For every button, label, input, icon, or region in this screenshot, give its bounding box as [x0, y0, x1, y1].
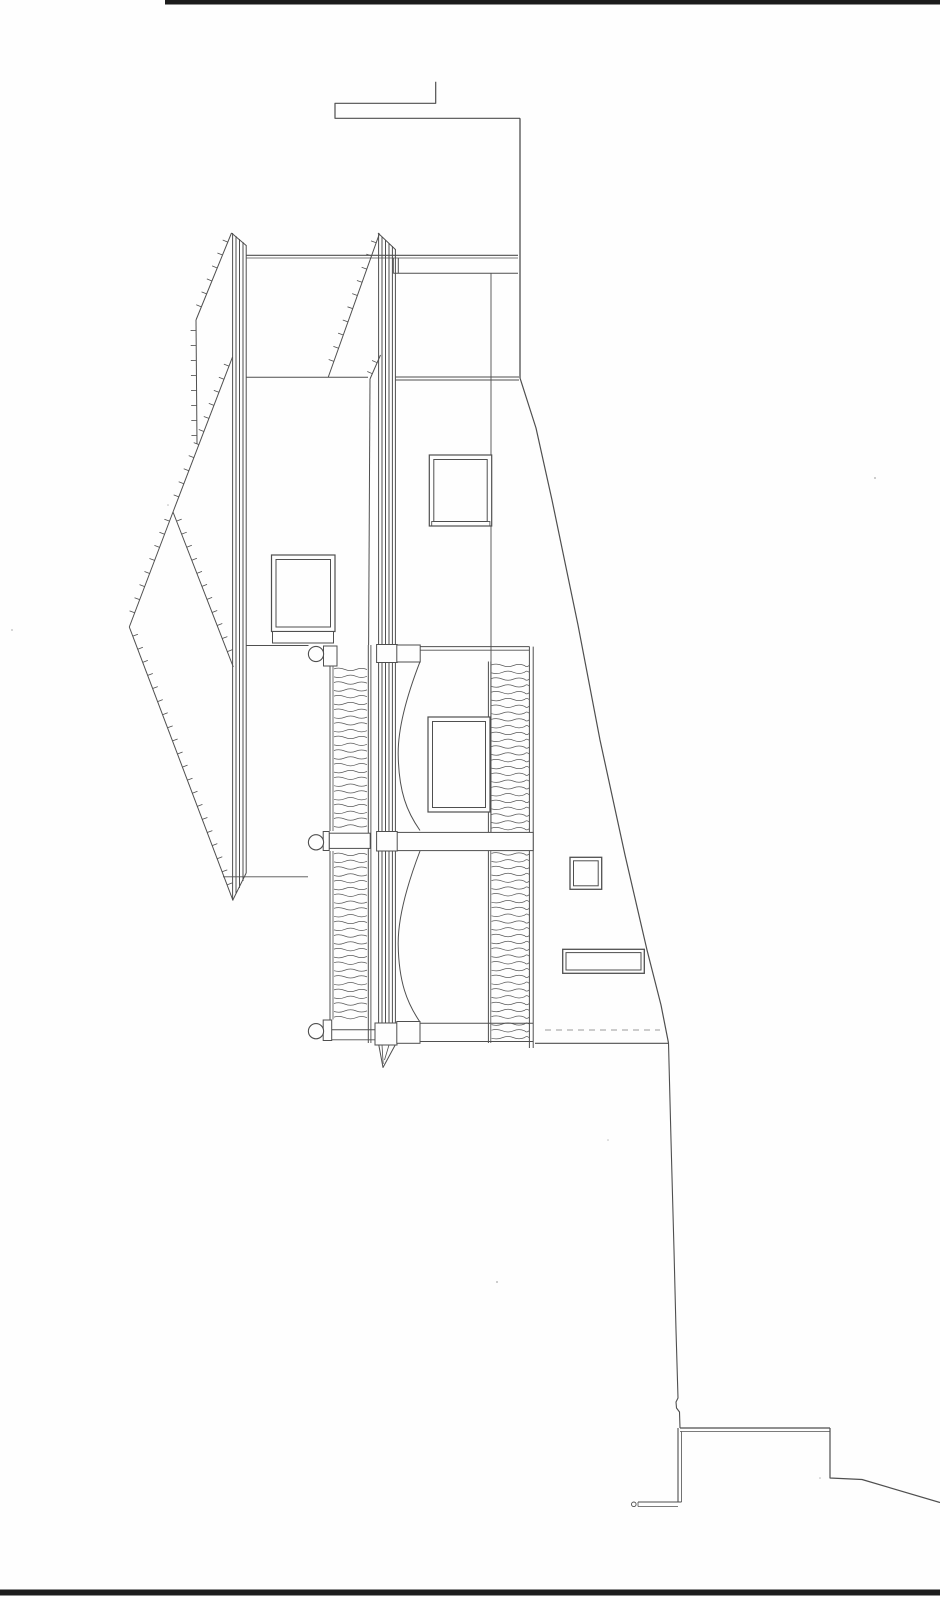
retaining-wall	[632, 1428, 940, 1507]
roof-edges	[129, 233, 380, 901]
elevation-drawing	[0, 0, 940, 1600]
mast-left	[232, 233, 247, 901]
mast-right	[378, 233, 395, 1023]
windows	[272, 455, 645, 973]
paper-specks	[11, 477, 876, 1479]
railing-level-bottom	[308, 1020, 533, 1068]
parapet-chimney	[335, 82, 520, 119]
scanned-elevation-sheet	[0, 0, 940, 1600]
sloped-wall-and-ground	[520, 378, 680, 1428]
